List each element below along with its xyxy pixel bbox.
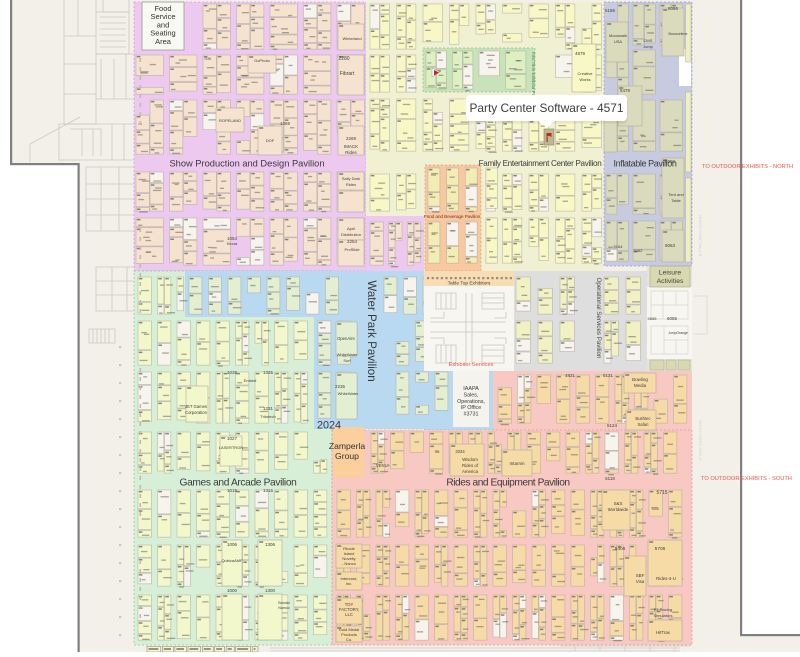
svg-text:1331: 1331 — [263, 406, 274, 411]
svg-text:LLC: LLC — [345, 612, 353, 617]
svg-text:First Time Exhibitor Pav: First Time Exhibitor Pav — [531, 52, 536, 99]
svg-text:6055: 6055 — [667, 316, 678, 321]
svg-text:VENU+: VENU+ — [376, 463, 391, 468]
svg-text:LASERTRON: LASERTRON — [219, 445, 243, 450]
svg-text:1015: 1015 — [227, 488, 238, 493]
svg-text:Games and Arcade Pavilion: Games and Arcade Pavilion — [180, 478, 297, 489]
svg-text:WhiteWater: WhiteWater — [337, 352, 358, 357]
svg-text:Rides of: Rides of — [462, 463, 479, 468]
svg-text:April: April — [347, 226, 355, 231]
svg-text:Media: Media — [634, 383, 647, 388]
svg-text:1335: 1335 — [263, 370, 274, 375]
svg-text:1054: 1054 — [227, 236, 238, 241]
svg-text:Show Production and Design Pav: Show Production and Design Pavilion — [169, 159, 324, 169]
svg-text:6069: 6069 — [665, 159, 676, 164]
svg-text:America: America — [462, 469, 479, 474]
svg-text:ProSlide: ProSlide — [344, 247, 360, 252]
svg-text:IP Office: IP Office — [461, 405, 481, 411]
svg-text:ROPELAND: ROPELAND — [219, 118, 241, 123]
svg-text:SBF: SBF — [636, 573, 645, 578]
svg-text:Works: Works — [579, 77, 590, 82]
svg-text:Operations,: Operations, — [457, 399, 485, 405]
svg-text:Visa: Visa — [636, 579, 645, 584]
svg-text:5124: 5124 — [607, 423, 618, 428]
svg-text:5406: 5406 — [615, 546, 626, 552]
svg-text:5164: 5164 — [614, 244, 624, 249]
svg-text:CMS: CMS — [644, 38, 653, 43]
svg-text:Bandai: Bandai — [278, 601, 289, 605]
svg-text:Table Top Exhibitors: Table Top Exhibitors — [448, 281, 491, 287]
svg-text:Rides and Equipment Pavilion: Rides and Equipment Pavilion — [446, 478, 569, 489]
svg-text:Jump: Jump — [643, 44, 654, 49]
svg-text:5118: 5118 — [605, 476, 615, 481]
svg-text:2254: 2254 — [347, 239, 358, 244]
svg-text:1306: 1306 — [265, 542, 276, 547]
svg-text:5131: 5131 — [603, 373, 614, 378]
svg-text:Corporation: Corporation — [185, 410, 208, 415]
svg-text:Party Center Software - 4571: Party Center Software - 4571 — [470, 101, 624, 115]
svg-text:2236: 2236 — [335, 384, 346, 389]
svg-text:S&S: S&S — [614, 501, 623, 506]
svg-text:5186: 5186 — [605, 8, 616, 13]
svg-text:5462: 5462 — [634, 248, 644, 253]
svg-text:Worldwide: Worldwide — [608, 507, 629, 512]
svg-text:Leisure: Leisure — [659, 270, 682, 277]
svg-text:Family Entertainment Center Pa: Family Entertainment Center Pavilion — [479, 159, 602, 168]
svg-text:1035: 1035 — [227, 370, 238, 375]
svg-text:3334: 3334 — [455, 449, 465, 454]
svg-text:Operational Services Pavilion: Operational Services Pavilion — [595, 278, 602, 359]
svg-text:Zamperla: Zamperla — [329, 441, 366, 451]
svg-text:Simulators: Simulators — [654, 613, 673, 618]
svg-text:DOF: DOF — [266, 138, 275, 143]
svg-text:1369: 1369 — [280, 121, 291, 126]
svg-text:5706: 5706 — [655, 546, 666, 552]
svg-text:1027: 1027 — [227, 436, 238, 441]
svg-text:Water Park Pavilion: Water Park Pavilion — [365, 280, 378, 381]
svg-text:SOUTH EXPO HALL E: SOUTH EXPO HALL E — [698, 420, 703, 461]
svg-text:Tent and: Tent and — [668, 192, 683, 197]
svg-text:Co.: Co. — [346, 637, 352, 642]
svg-text:Kiona: Kiona — [227, 241, 238, 246]
svg-text:Wisdom: Wisdom — [462, 457, 478, 462]
svg-text:Food and Beverage Pavilion: Food and Beverage Pavilion — [424, 214, 481, 220]
svg-text:Sales,: Sales, — [464, 392, 479, 398]
svg-text:GoPhoto: GoPhoto — [254, 58, 271, 63]
svg-text:Rides: Rides — [345, 150, 357, 155]
svg-text:Distribution: Distribution — [341, 232, 361, 237]
svg-text:F1 Racing: F1 Racing — [654, 607, 672, 612]
svg-text:TO OUTDOOR EXHIBITS - NORTH: TO OUTDOOR EXHIBITS - NORTH — [702, 164, 793, 170]
svg-text:#3731: #3731 — [464, 412, 479, 418]
svg-text:Winterland: Winterland — [342, 36, 361, 41]
svg-text:Surf: Surf — [343, 358, 351, 363]
svg-text:Tritotech: Tritotech — [260, 414, 275, 419]
svg-text:HitTrax: HitTrax — [656, 630, 671, 635]
svg-text:Safari: Safari — [638, 422, 649, 427]
svg-text:GfX: GfX — [205, 56, 212, 61]
svg-text:USA: USA — [614, 39, 623, 44]
svg-text:5655: 5655 — [648, 316, 658, 321]
svg-text:Moonwalk: Moonwalk — [609, 33, 627, 38]
svg-text:6086: 6086 — [668, 6, 679, 11]
svg-text:5715: 5715 — [656, 490, 667, 496]
svg-text:JumpOrange: JumpOrange — [668, 331, 688, 335]
svg-text:OpenAire: OpenAire — [337, 336, 355, 341]
svg-text:Group: Group — [335, 451, 359, 461]
svg-text:TO OUTDOOR EXHIBITS - SOUTH: TO OUTDOOR EXHIBITS - SOUTH — [701, 476, 792, 482]
svg-text:JET Games: JET Games — [185, 404, 207, 409]
svg-text:Rides-4-U: Rides-4-U — [656, 576, 676, 581]
svg-text:IAAPA: IAAPA — [463, 386, 479, 392]
svg-text:Namco: Namco — [278, 606, 289, 610]
svg-text:2024: 2024 — [317, 420, 341, 432]
svg-text:Creative: Creative — [578, 71, 594, 76]
svg-text:1300: 1300 — [265, 588, 276, 593]
svg-text:Table: Table — [671, 198, 681, 203]
svg-text:- Nanco: - Nanco — [342, 561, 357, 566]
svg-text:Bouncetime: Bouncetime — [669, 32, 688, 36]
svg-text:Exhibitor Services: Exhibitor Services — [449, 362, 494, 368]
svg-text:1006: 1006 — [227, 542, 238, 547]
svg-text:Rides: Rides — [346, 182, 356, 187]
svg-text:Activities: Activities — [657, 278, 684, 285]
svg-text:4879: 4879 — [575, 51, 586, 56]
svg-text:2269: 2269 — [346, 136, 357, 141]
svg-text:NORTH CAMP HALL B: NORTH CAMP HALL B — [698, 215, 703, 257]
svg-text:WhiteWater: WhiteWater — [338, 391, 359, 396]
svg-text:1315: 1315 — [263, 488, 274, 493]
svg-text:6063: 6063 — [665, 243, 676, 248]
svg-text:Intamin: Intamin — [509, 461, 525, 466]
svg-text:1000: 1000 — [227, 588, 238, 593]
svg-text:Sally Dark: Sally Dark — [342, 176, 360, 181]
svg-text:Fibrart: Fibrart — [340, 71, 355, 77]
svg-text:Bushtec: Bushtec — [635, 416, 650, 421]
svg-text:Area: Area — [155, 37, 172, 46]
svg-text:Embed: Embed — [244, 378, 257, 383]
svg-text:2280: 2280 — [338, 56, 349, 62]
svg-text:Inc.: Inc. — [346, 581, 352, 586]
svg-text:5478: 5478 — [620, 88, 631, 93]
svg-text:QubicaAMF: QubicaAMF — [221, 558, 243, 563]
svg-text:4831: 4831 — [565, 373, 576, 378]
svg-text:Bowling: Bowling — [632, 377, 648, 382]
svg-text:IMACK: IMACK — [344, 144, 358, 149]
